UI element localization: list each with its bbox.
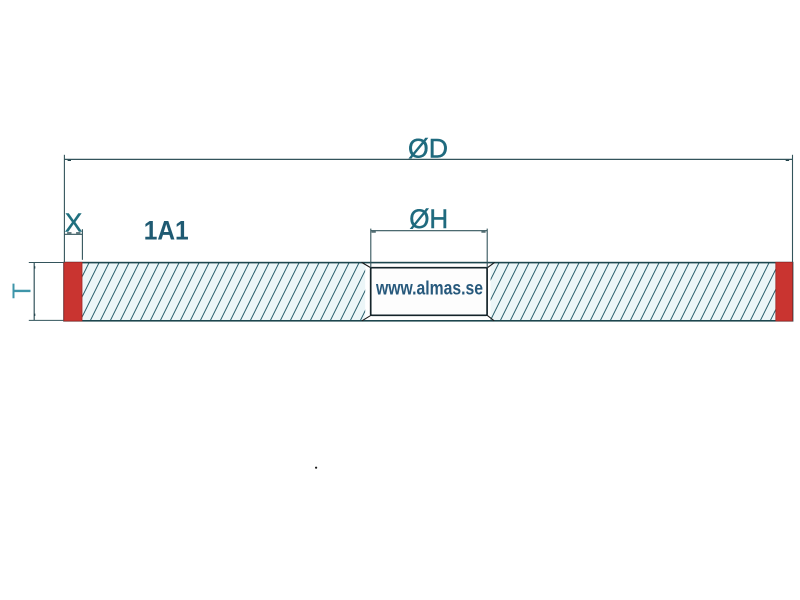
svg-text:T: T [6,283,36,299]
svg-text:www.almas.se: www.almas.se [375,279,483,300]
svg-text:ØD: ØD [408,134,448,164]
svg-text:ØH: ØH [409,204,448,234]
svg-text:X: X [65,208,82,238]
svg-text:1A1: 1A1 [144,216,189,246]
